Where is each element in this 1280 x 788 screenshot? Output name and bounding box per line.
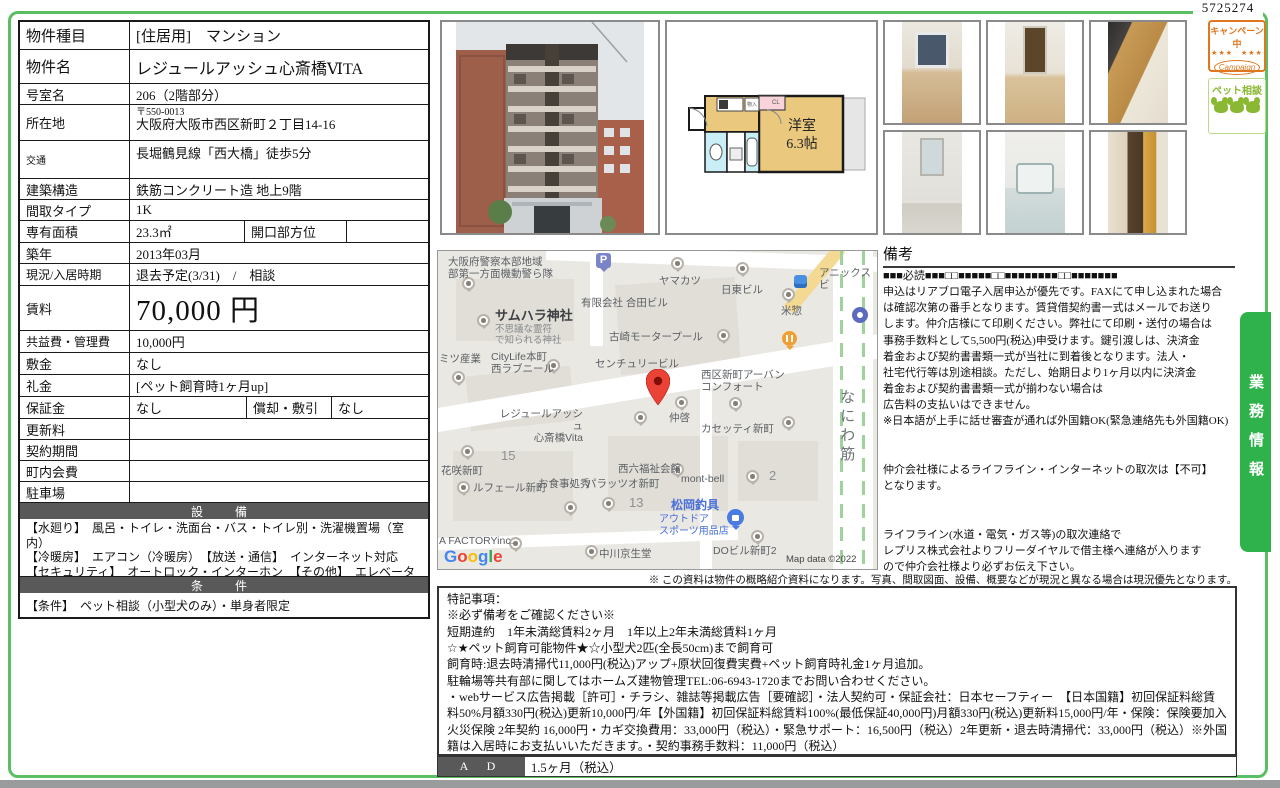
map-label-seiroku: 西六福祉会館 (618, 463, 681, 475)
map-label-naniwasuji: なにわ筋 (838, 389, 855, 465)
map-pin (452, 371, 465, 384)
contract-value (130, 440, 428, 460)
map-label-citylife: CityLife本町 西ラブニール (491, 351, 554, 375)
map-label-montbell: mont-bell (681, 473, 724, 485)
median-stripe (862, 251, 865, 570)
map-label-dobill: DOビル新町2 (713, 545, 777, 557)
fee-label: 共益費・管理費 (20, 331, 130, 352)
campaign-stamp-text: キャンペーン中 (1210, 24, 1264, 50)
parking-label: 駐車場 (20, 482, 130, 502)
pet-silhouette-icon (1246, 101, 1260, 113)
map-label-lefeir: ルフェール新町 (473, 482, 547, 494)
renewal-label: 更新料 (20, 419, 130, 439)
townfee-value (130, 461, 428, 481)
guarantee-value: なし (130, 397, 247, 418)
map-label-nakagawa: 中川京生堂 (599, 548, 652, 560)
map-label-goda: 有限会社 合田ビル (581, 297, 668, 309)
area-value: 23.3㎡ (130, 221, 245, 242)
map-label-afactory: A FACTORYinc. (439, 535, 514, 547)
floor-plan-art: CL 物入 洋室 6.3帖 (667, 22, 876, 233)
structure-label: 建築構造 (20, 179, 130, 199)
photo-room-door (986, 20, 1084, 125)
map-pin (751, 530, 764, 543)
campaign-stars: ★★★ ★★★ (1210, 50, 1264, 57)
facing-label: 開口部方位 (245, 221, 347, 242)
name-label: 物件名 (20, 50, 130, 83)
address-label: 所在地 (20, 105, 130, 140)
property-location-pin (646, 369, 670, 410)
area-label: 専有面積 (20, 221, 130, 242)
map-pin (729, 397, 742, 410)
address-value: 〒550-0013 大阪府大阪市西区新町２丁目14-16 (130, 105, 428, 140)
map-label-palazzo: パラッツオ新町 (586, 478, 660, 490)
contract-label: 契約期間 (20, 440, 130, 460)
svg-text:物入: 物入 (747, 101, 757, 108)
map-pin (602, 497, 615, 510)
room-label: 号室名 (20, 84, 130, 104)
room-value: 206（2階部分） (130, 84, 428, 104)
photo-kitchen-hall (1089, 130, 1187, 235)
remarks-title: 備考 (883, 243, 1235, 268)
bottom-gray-strip (0, 780, 1280, 788)
amortization-label: 償却・敷引 (247, 397, 332, 418)
access-value: 長堀鶴見線「西大橋」徒歩5分 (130, 141, 428, 178)
property-sheet: 5725274 物件種目[住居用] マンション 物件名レジュールアッシュ心斎橋Ⅵ… (0, 0, 1280, 788)
keymoney-label: 礼金 (20, 375, 130, 396)
disclaimer-note: ※ この資料は物件の概略紹介資料になります。写真、間取図面、設備、概要などが現況… (437, 572, 1237, 587)
map-pin (585, 545, 598, 558)
structure-value: 鉄筋コンクリート造 地上9階 (130, 179, 428, 199)
map-label-hanasaki: 花咲新町 (441, 465, 483, 477)
map-label-block15: 15 (501, 449, 515, 464)
built-label: 築年 (20, 243, 130, 263)
address-text: 大阪府大阪市西区新町２丁目14-16 (136, 117, 335, 132)
map-label-matsuoka-sub: アウトドア スポーツ用品店 (659, 514, 729, 537)
condition-text: 【条件】 ペット相談（小型犬のみ）・単身者限定 (20, 593, 428, 617)
map-pin (461, 445, 474, 458)
map-label-lejour: レジュールアッシュ 心斎橋Vita (495, 408, 583, 444)
map-label-matsuoka: 松岡釣具 (671, 499, 719, 513)
map-pin (736, 262, 749, 275)
amortization-value: なし (332, 397, 428, 418)
status-label: 現況/入居時期 (20, 264, 130, 285)
map-pin-shrine (477, 314, 490, 327)
room-size-label: 6.3帖 (786, 136, 818, 152)
townfee-label: 町内会費 (20, 461, 130, 481)
map-label-samuhara: サムハラ神社 (495, 309, 573, 324)
business-info-tab: 業務情報 (1240, 312, 1271, 552)
deposit-value: なし (130, 353, 428, 374)
layout-label: 間取タイプ (20, 200, 130, 220)
map-pin (782, 416, 795, 429)
document-number: 5725274 (1193, 0, 1263, 16)
location-map: 大阪府警察本部地域 部第一方面機動警ら隊 ヤマカツ 有限会社 合田ビル 日東ビル… (437, 250, 878, 570)
map-pin (671, 257, 684, 270)
parking-value (130, 482, 428, 502)
map-pin (782, 288, 795, 301)
bus-stop-icon (794, 275, 807, 288)
pet-silhouette-icon (1214, 101, 1228, 113)
map-label-anix: アニックスビ (819, 267, 877, 291)
floor-plan: CL 物入 洋室 6.3帖 (665, 20, 878, 235)
type-value: [住居用] マンション (130, 22, 428, 49)
status-value: 退去予定(3/31) / 相談 (130, 264, 428, 285)
keymoney-value: [ペット飼育時1ヶ月up] (130, 375, 428, 396)
ad-row: A D 1.5ヶ月（税込） (437, 756, 1237, 777)
rent-value: 70,000 円 (130, 286, 428, 330)
ad-label: A D (438, 757, 525, 776)
map-label-mitsu: ミツ産業 (439, 353, 481, 365)
restaurant-icon (782, 331, 797, 346)
building-art (442, 22, 658, 233)
business-info-tab-label: 業務情報 (1245, 374, 1266, 490)
photo-room-window (883, 20, 981, 125)
map-pin (634, 411, 647, 424)
map-attribution: Map data ©2022 (786, 554, 856, 565)
parking-icon: P (596, 253, 611, 268)
name-value: レジュールアッシュ心斎橋ⅥTA (130, 50, 428, 83)
property-table: 物件種目[住居用] マンション 物件名レジュールアッシュ心斎橋ⅥTA 号室名20… (18, 20, 430, 619)
map-label-police: 大阪府警察本部地域 部第一方面機動警ら隊 (448, 256, 553, 280)
transit-icon (852, 307, 868, 323)
map-label-cassetti: カセッティ新町 (701, 423, 774, 435)
shopping-icon (727, 509, 744, 526)
map-label-nakakei: 仲啓 (669, 412, 690, 424)
room-label: 洋室 (788, 117, 816, 134)
remarks-body: ■■■必読■■■□□■■■■■□□■■■■■■■■□□■■■■■■■ 申込はリア… (883, 268, 1237, 568)
building-exterior-photo (440, 20, 660, 235)
map-label-block13: 13 (629, 496, 643, 511)
photo-kitchen (1089, 20, 1187, 125)
built-value: 2013年03月 (130, 243, 428, 263)
renewal-value (130, 419, 428, 439)
map-label-yamakatsu: ヤマカツ (659, 275, 701, 287)
map-pin (457, 481, 470, 494)
deposit-label: 敷金 (20, 353, 130, 374)
rent-label: 賃料 (20, 286, 130, 330)
condition-header: 条 件 (20, 577, 428, 593)
map-pin (564, 501, 577, 514)
campaign-stamp: キャンペーン中 ★★★ ★★★ Campaign (1208, 20, 1266, 72)
map-pin (746, 470, 759, 483)
equipment-text: 【水廻り】 風呂・トイレ・洗面台・バス・トイレ別・洗濯機置場（室内） 【冷暖房】… (20, 519, 428, 576)
pet-silhouette-icon (1230, 101, 1244, 113)
photo-washroom (883, 130, 981, 235)
special-notes: 特記事項： ※必ず備考をご確認ください※ 短期違約 1年未満総賃料2ヶ月 1年以… (437, 586, 1237, 756)
photo-bathroom (986, 130, 1084, 235)
guarantee-label: 保証金 (20, 397, 130, 418)
map-label-oshokuji: お食事処秀 (538, 478, 591, 490)
map-label-nitto: 日東ビル (721, 284, 763, 296)
map-label-block2: 2 (769, 469, 776, 484)
google-logo: Google (444, 547, 503, 567)
facing-value (347, 221, 428, 242)
access-label: 交通 (20, 141, 130, 178)
map-pin (675, 396, 688, 409)
campaign-bubble-text: Campaign (1214, 60, 1260, 75)
map-label-kosaki: 古崎モータープール (609, 331, 703, 343)
type-label: 物件種目 (20, 22, 130, 49)
storage-label-pos: CL (772, 100, 780, 106)
ad-value: 1.5ヶ月（税込） (525, 757, 1236, 776)
map-label-urban: 西区新町アーバン コンフォート (701, 369, 785, 393)
equipment-header: 設 備 (20, 503, 428, 519)
fee-value: 10,000円 (130, 331, 428, 352)
map-label-yoneso: 米惣 (781, 305, 802, 317)
map-label-samuhara-sub: 不思議な霊符 で知られる神社 (495, 325, 562, 347)
map-pin (717, 329, 730, 342)
layout-value: 1K (130, 200, 428, 220)
pet-stamp-text: ペット相談 (1209, 82, 1265, 97)
pet-consult-stamp: ペット相談 (1208, 78, 1266, 134)
